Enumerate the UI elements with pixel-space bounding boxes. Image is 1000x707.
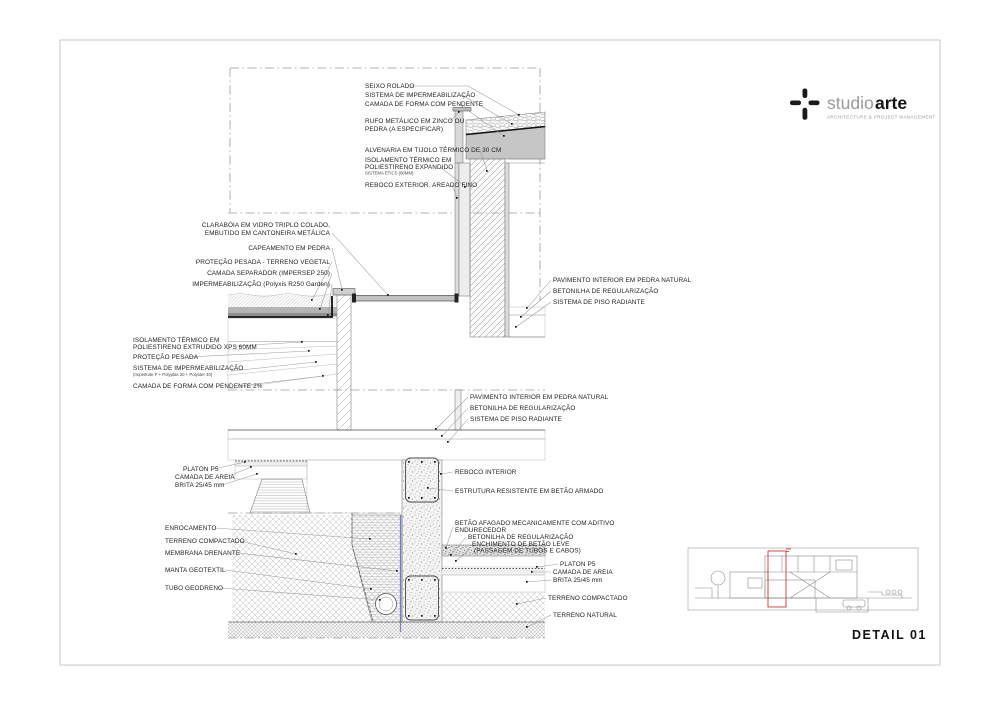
label-enchimento-2: (PASSAGEM DE TUBOS E CABOS) xyxy=(474,548,581,555)
label-etics-1: ISOLAMENTO TÉRMICO EM xyxy=(365,155,451,164)
label-sistema-imper-2b: (Imperkote F + Polyplas 30 + Polyster 40… xyxy=(133,372,213,377)
vegetal-soil-layer xyxy=(228,295,337,307)
label-platon-right: PLATON P5 xyxy=(560,561,596,568)
label-capeamento: CAPEAMENTO EM PEDRA xyxy=(248,245,330,252)
label-tubo-geodreno: TUBO GEODRENO xyxy=(165,585,223,592)
label-brita-right: BRITA 25/45 mm xyxy=(553,577,603,584)
label-sistema-impermeabilizacao: SISTEMA DE IMPERMEABILIZAÇÃO xyxy=(365,90,475,99)
label-xps-1: ISOLAMENTO TÉRMICO EM xyxy=(133,335,219,344)
label-reboco-interior: REBOCO INTERIOR xyxy=(455,469,517,476)
label-enrocamento: ENROCAMENTO xyxy=(165,525,216,532)
label-etics-3: SISTEMA ETICS (80MM) xyxy=(365,171,414,176)
logo-name-light: studio xyxy=(827,93,874,113)
concrete-beam-upper xyxy=(406,458,439,502)
label-terreno-compactado-left: TERRENO COMPACTADO xyxy=(165,538,245,545)
label-betonilha-upper: BETONILHA DE REGULARIZAÇÃO xyxy=(553,286,658,295)
label-pavimento-upper: PAVIMENTO INTERIOR EM PEDRA NATURAL xyxy=(553,277,692,284)
glazing-angle-left xyxy=(352,294,356,303)
label-claraboia-2: EMBUTIDO EM CANTONEIRA METÁLICA xyxy=(205,228,331,237)
label-betao-afagado-1: BETÃO AFAGADO MECANICAMENTE COM ADITIVO xyxy=(455,518,614,527)
label-platon-left: PLATON P5 xyxy=(183,466,219,473)
detail-title: DETAIL 01 xyxy=(852,628,927,642)
label-estrutura: ESTRUTURA RESISTENTE EM BETÃO ARMADO xyxy=(455,486,603,495)
label-manta-geotextil: MANTA GEOTEXTIL xyxy=(165,567,226,574)
interior-render-layer xyxy=(505,163,509,337)
natural-soil-band xyxy=(228,622,545,638)
label-terreno-natural: TERRENO NATURAL xyxy=(553,612,617,619)
label-reboco-exterior: REBOCO EXTERIOR. AREADO FINO xyxy=(365,182,477,189)
label-piso-radiante-upper: SISTEMA DE PISO RADIANTE xyxy=(553,299,645,306)
detail-drawing-canvas: SEIXO ROLADO SISTEMA DE IMPERMEABILIZAÇÃ… xyxy=(0,0,1000,707)
compacted-soil-right xyxy=(442,592,545,622)
triple-glazing xyxy=(355,296,456,302)
label-pavimento-mid: PAVIMENTO INTERIOR EM PEDRA NATURAL xyxy=(470,394,609,401)
label-brita-left: BRITA 25/45 mm xyxy=(175,482,225,489)
drawing-sheet: SEIXO ROLADO SISTEMA DE IMPERMEABILIZAÇÃ… xyxy=(0,0,1000,707)
label-alvenaria: ALVENARIA EM TIJOLO TÉRMICO DE 30 CM xyxy=(365,145,501,154)
label-camada-separador: CAMADA SEPARADOR (IMPERSEP 250) xyxy=(207,270,330,277)
label-areia-right: CAMADA DE AREIA xyxy=(553,569,613,576)
skylight-curb xyxy=(337,295,351,430)
label-impermeabilizacao-garden: IMPERMEABILIZAÇÃO (Polyxis R250 Garden) xyxy=(192,279,330,288)
key-plan-frame xyxy=(688,548,918,610)
label-xps-2: POLIESTIRENO EXTRUDIDO XPS 60MM xyxy=(133,344,257,351)
glazing-angle-right xyxy=(455,294,459,303)
label-terreno-compactado-right: TERRENO COMPACTADO xyxy=(548,595,628,602)
concrete-beam-lower xyxy=(406,576,439,620)
label-membrana-drenante: MEMBRANA DRENANTE xyxy=(165,550,240,557)
logo-tagline: ARCHITECTURE & PROJECT MANAGEMENT xyxy=(827,115,936,120)
stone-coping xyxy=(333,289,355,296)
sand-layer-left xyxy=(235,462,307,466)
label-betonilha-lower: BETONILHA DE REGULARIZAÇÃO xyxy=(468,532,573,541)
foundation-wall xyxy=(402,458,442,622)
drain-protection-layer xyxy=(228,313,337,317)
label-betao-afagado-2: ENDURECEDOR xyxy=(455,527,506,534)
natural-ground xyxy=(228,622,545,638)
label-seixo-rolado: SEIXO ROLADO xyxy=(365,83,415,90)
sand-layer-right xyxy=(442,570,545,575)
label-betonilha-mid: BETONILHA DE REGULARIZAÇÃO xyxy=(470,403,575,412)
label-camada-forma-2: CAMADA DE FORMA COM PENDENTE 2% xyxy=(133,383,263,390)
label-rufo-1: RUFO METÁLICO EM ZINCO OU xyxy=(365,116,465,125)
label-protecao-vegetal: PROTEÇÃO PESADA - TERRENO VEGETAL xyxy=(196,257,330,266)
label-areia-left: CAMADA DE AREIA xyxy=(175,474,235,481)
logo-name-bold: arte xyxy=(875,93,907,113)
label-claraboia-1: CLARABÓIA EM VIDRO TRIPLO COLADO, xyxy=(202,220,330,229)
label-camada-forma: CAMADA DE FORMA COM PENDENTE xyxy=(365,101,483,108)
label-sistema-imper-2: SISTEMA DE IMPERMEABILIZAÇÃO xyxy=(133,363,243,372)
label-piso-radiante-mid: SISTEMA DE PISO RADIANTE xyxy=(470,416,562,423)
lower-wall-face xyxy=(455,390,461,430)
geodrain-pipe-inner xyxy=(379,597,393,611)
label-protecao-pesada: PROTEÇÃO PESADA xyxy=(133,352,199,361)
label-rufo-2: PEDRA (A ESPECIFICAR) xyxy=(365,126,443,133)
